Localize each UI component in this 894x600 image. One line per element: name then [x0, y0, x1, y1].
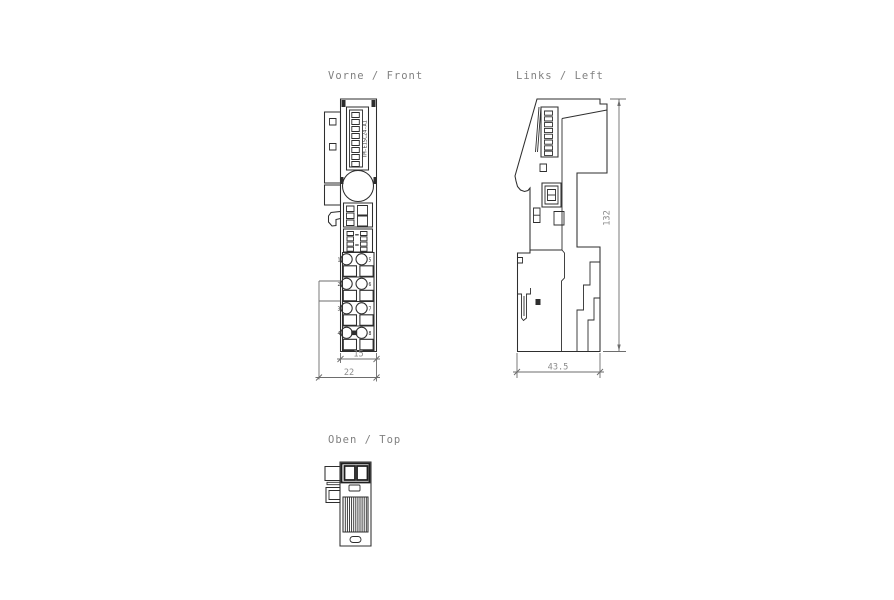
- terminal-number: 2: [338, 282, 341, 288]
- dimension-label-depth: 43.5: [548, 363, 569, 373]
- top-view-drawing: [315, 455, 390, 555]
- front-left-bus-connector: [325, 112, 341, 183]
- left-double-box-detail: [534, 208, 541, 223]
- technical-drawing-page: Vorne / Front Links / Left Oben / Top TM…: [0, 0, 894, 600]
- front-terminal-block: 1 5 2 6 3 7 4 8: [338, 253, 374, 351]
- left-small-square-detail: [540, 164, 547, 172]
- left-view-title: Links / Left: [516, 70, 604, 82]
- left-lower-contours: [518, 262, 601, 352]
- dimension-label-height: 132: [603, 210, 613, 226]
- terminal-number: 1: [338, 257, 341, 263]
- terminal-number: 8: [369, 331, 372, 337]
- front-rotary-element: [341, 171, 377, 202]
- front-view-title: Vorne / Front: [328, 70, 423, 82]
- front-release-hook: [329, 212, 341, 227]
- left-bus-connector-side: [536, 107, 559, 157]
- terminal-number: 3: [338, 306, 341, 312]
- front-coding-block-a: [344, 203, 373, 227]
- left-latch-detail: [542, 183, 561, 207]
- terminal-number: 7: [369, 306, 372, 312]
- dimension-label-overall-width: 22: [344, 368, 354, 378]
- dimension-label-body-width: 15: [353, 350, 363, 360]
- front-label-strip: TM-E15C24-A1: [347, 107, 369, 170]
- left-dimension-height: 132: [603, 99, 627, 352]
- top-oval-slot: [350, 537, 361, 543]
- left-dimension-depth: 43.5: [513, 353, 604, 378]
- top-slot-detail: [349, 485, 360, 491]
- front-left-box: [325, 185, 341, 205]
- top-connector-section: [342, 464, 370, 483]
- top-left-connector-a: [325, 467, 340, 485]
- top-left-connector-b: [326, 488, 340, 503]
- left-view-drawing: 132 43.5: [500, 90, 640, 390]
- module-label-text: TM-E15C24-A1: [363, 120, 369, 157]
- front-coding-block-b: [344, 229, 373, 252]
- top-view-title: Oben / Top: [328, 434, 401, 446]
- terminal-number: 4: [338, 331, 341, 337]
- top-vent-grille: [343, 497, 368, 532]
- left-mid-rect-detail: [554, 212, 564, 226]
- front-view-drawing: TM-E15C24-A1: [305, 90, 415, 395]
- terminal-number: 6: [369, 282, 372, 288]
- terminal-number: 5: [369, 257, 372, 263]
